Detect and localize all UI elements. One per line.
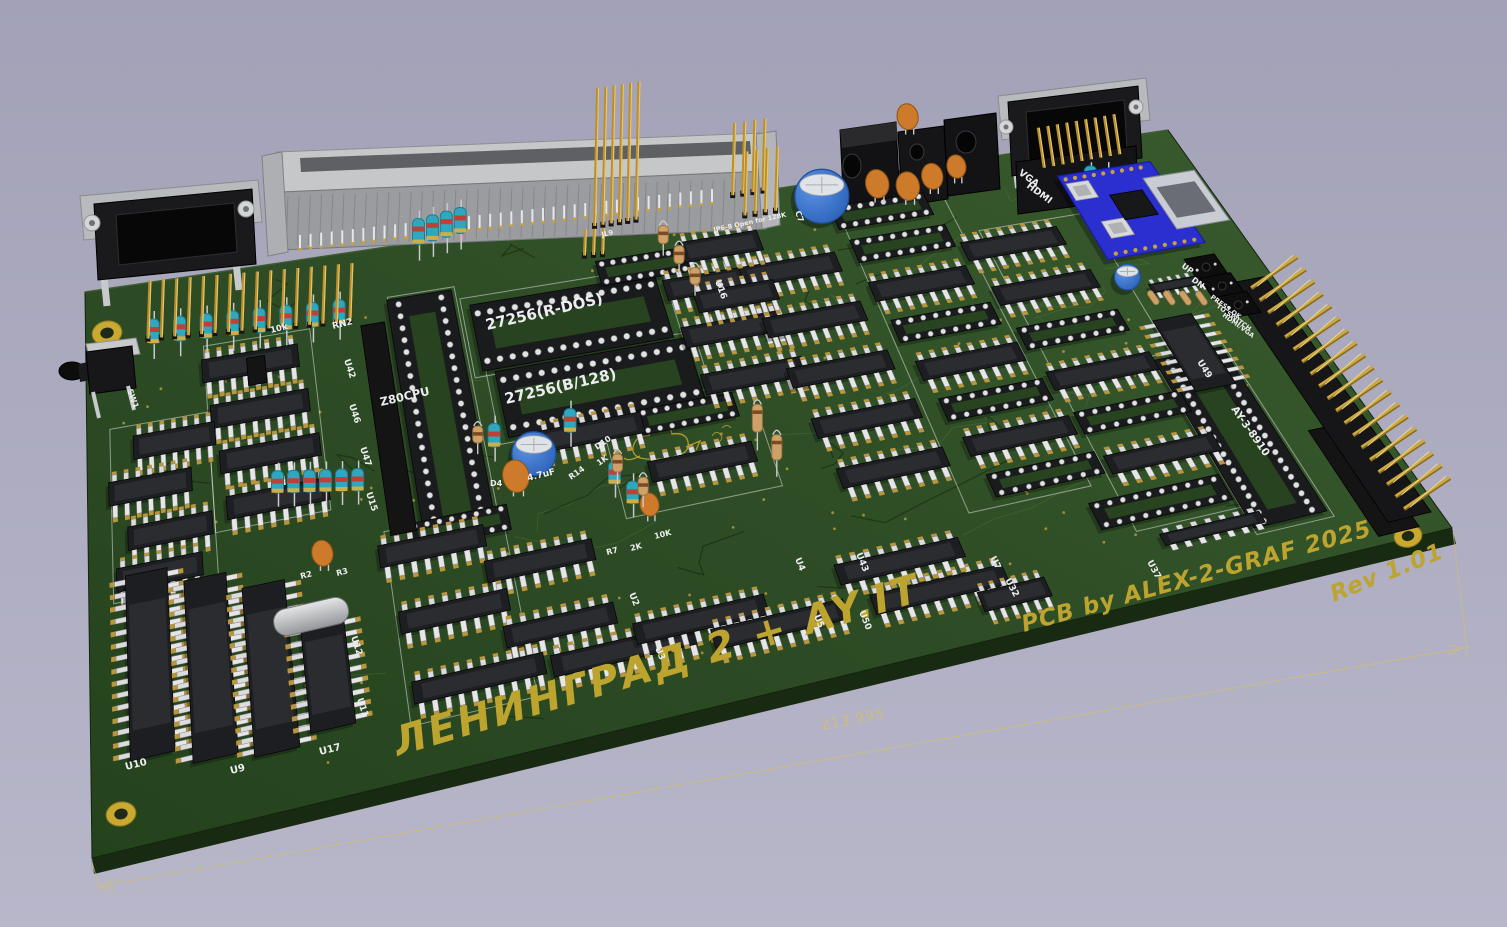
pcb-3d-viewport[interactable]: ЛЕНИНГРАД 2 + AY.ITPCB by ALEX-2-GRAF 20… (0, 0, 1507, 927)
black-header (246, 355, 267, 385)
rca-jack (944, 113, 1000, 196)
silkscreen-text: D4 (490, 479, 503, 488)
silkscreen-text: 213.995 (820, 706, 887, 734)
pcb-render: ЛЕНИНГРАД 2 + AY.ITPCB by ALEX-2-GRAF 20… (0, 0, 1507, 927)
